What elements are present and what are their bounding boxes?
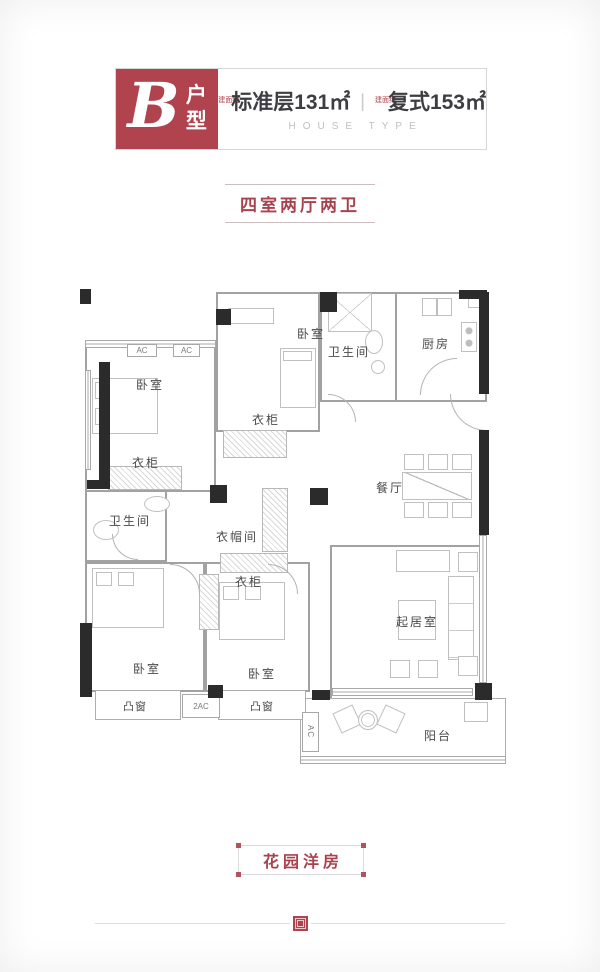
label-bay-window-left: 凸窗 xyxy=(105,698,165,714)
sofa xyxy=(448,576,474,660)
ottoman xyxy=(418,660,438,678)
label-dining: 餐厅 xyxy=(360,479,420,496)
column xyxy=(80,289,91,304)
dining-chair xyxy=(452,454,472,470)
column xyxy=(479,292,489,394)
label-kitchen: 厨房 xyxy=(406,335,466,352)
label-wardrobe-topleft: 衣柜 xyxy=(116,454,176,471)
area-note-2: 建面约 xyxy=(375,97,384,105)
side-table xyxy=(458,656,478,676)
area-standard: 标准层131㎡ xyxy=(231,86,350,116)
column xyxy=(80,623,92,697)
column xyxy=(208,685,223,698)
label-wardrobe-cloak: 衣柜 xyxy=(219,573,279,590)
column xyxy=(87,480,110,489)
area-line: 建面约 标准层131㎡ | 建面约 复式153㎡ xyxy=(218,86,486,116)
window-bedroom-topleft xyxy=(85,370,91,470)
dining-chair xyxy=(428,502,448,518)
window-living-right xyxy=(479,535,487,683)
area-info: 建面约 标准层131㎡ | 建面约 复式153㎡ HOUSE TYPE xyxy=(218,69,486,149)
house-type-header: B 户 型 建面约 标准层131㎡ | 建面约 复式153㎡ HOUSE TYP… xyxy=(115,68,487,150)
label-wardrobe-topmid: 衣柜 xyxy=(236,411,296,428)
dining-chair xyxy=(404,454,424,470)
wardrobe-hatch-bedmid xyxy=(199,574,219,630)
column xyxy=(479,430,489,535)
divider-line xyxy=(95,923,290,924)
ac-box-1: AC xyxy=(127,344,157,357)
seal-inner-icon xyxy=(297,920,304,927)
balcony-railing xyxy=(300,756,506,764)
door-arc-entry xyxy=(450,394,487,431)
ottoman xyxy=(390,660,410,678)
balcony-cabinet xyxy=(464,702,488,722)
column xyxy=(312,690,330,700)
dining-chair xyxy=(404,502,424,518)
project-badge-text: 花园洋房 xyxy=(259,848,343,872)
pillow xyxy=(118,572,134,586)
badge-corner-icon xyxy=(361,872,366,877)
wardrobe-hatch-topmid xyxy=(223,430,287,458)
desk xyxy=(228,308,274,324)
column xyxy=(210,485,227,503)
badge-corner-icon xyxy=(236,872,241,877)
ac-box-2: AC xyxy=(173,344,200,357)
label-living: 起居室 xyxy=(387,613,447,630)
label-bedroom-botleft: 卧室 xyxy=(117,660,177,677)
badge-corner-icon xyxy=(236,843,241,848)
balcony-table xyxy=(358,710,378,730)
sofa-bench xyxy=(396,550,450,572)
floorplan-page: B 户 型 建面约 标准层131㎡ | 建面约 复式153㎡ HOUSE TYP… xyxy=(0,0,600,972)
column xyxy=(475,683,492,700)
area-separator: | xyxy=(360,91,365,112)
ac-label: AC xyxy=(136,346,147,355)
seal-icon xyxy=(293,916,308,931)
type-letter: B xyxy=(127,75,179,137)
pillow xyxy=(96,572,112,586)
dining-chair xyxy=(428,454,448,470)
ac-label: AC xyxy=(181,346,192,355)
area-duplex: 复式153㎡ xyxy=(388,86,486,116)
label-bedroom-topmid: 卧室 xyxy=(281,325,341,342)
footer-divider xyxy=(95,915,505,931)
badge-corner-icon xyxy=(361,843,366,848)
side-table xyxy=(458,552,478,572)
label-balcony: 阳台 xyxy=(408,727,468,744)
column xyxy=(216,309,231,325)
dining-chair xyxy=(452,502,472,518)
label-bathroom-top: 卫生间 xyxy=(319,343,379,360)
type-badge: B 户 型 xyxy=(116,69,218,149)
washbasin xyxy=(144,496,170,512)
house-type-subtitle: HOUSE TYPE xyxy=(281,121,422,132)
ac-box-balcony: AC xyxy=(302,712,319,752)
type-word-top: 户 xyxy=(186,83,207,109)
column xyxy=(320,292,337,312)
layout-badge: 四室两厅两卫 xyxy=(225,184,375,223)
type-word-bottom: 型 xyxy=(186,109,207,135)
type-word: 户 型 xyxy=(186,83,207,136)
column xyxy=(99,362,110,487)
label-cloakroom: 衣帽间 xyxy=(207,528,267,545)
washbasin xyxy=(371,360,385,374)
pillow xyxy=(283,351,312,361)
label-bedroom-topleft: 卧室 xyxy=(120,376,180,393)
ac-label: AC xyxy=(306,725,315,738)
sliding-door-balcony xyxy=(332,688,473,696)
area-note-1: 建面约 xyxy=(218,97,227,105)
label-bathroom-midleft: 卫生间 xyxy=(100,512,160,529)
kitchen-sink xyxy=(422,298,452,316)
label-bay-window-right: 凸窗 xyxy=(232,698,292,714)
column xyxy=(310,488,328,505)
project-badge: 花园洋房 xyxy=(238,845,364,875)
ac2-label: 2AC xyxy=(193,702,209,711)
floor-plan: AC AC 2AC AC xyxy=(78,282,512,778)
label-bedroom-botmid: 卧室 xyxy=(232,665,292,682)
divider-line xyxy=(311,923,506,924)
